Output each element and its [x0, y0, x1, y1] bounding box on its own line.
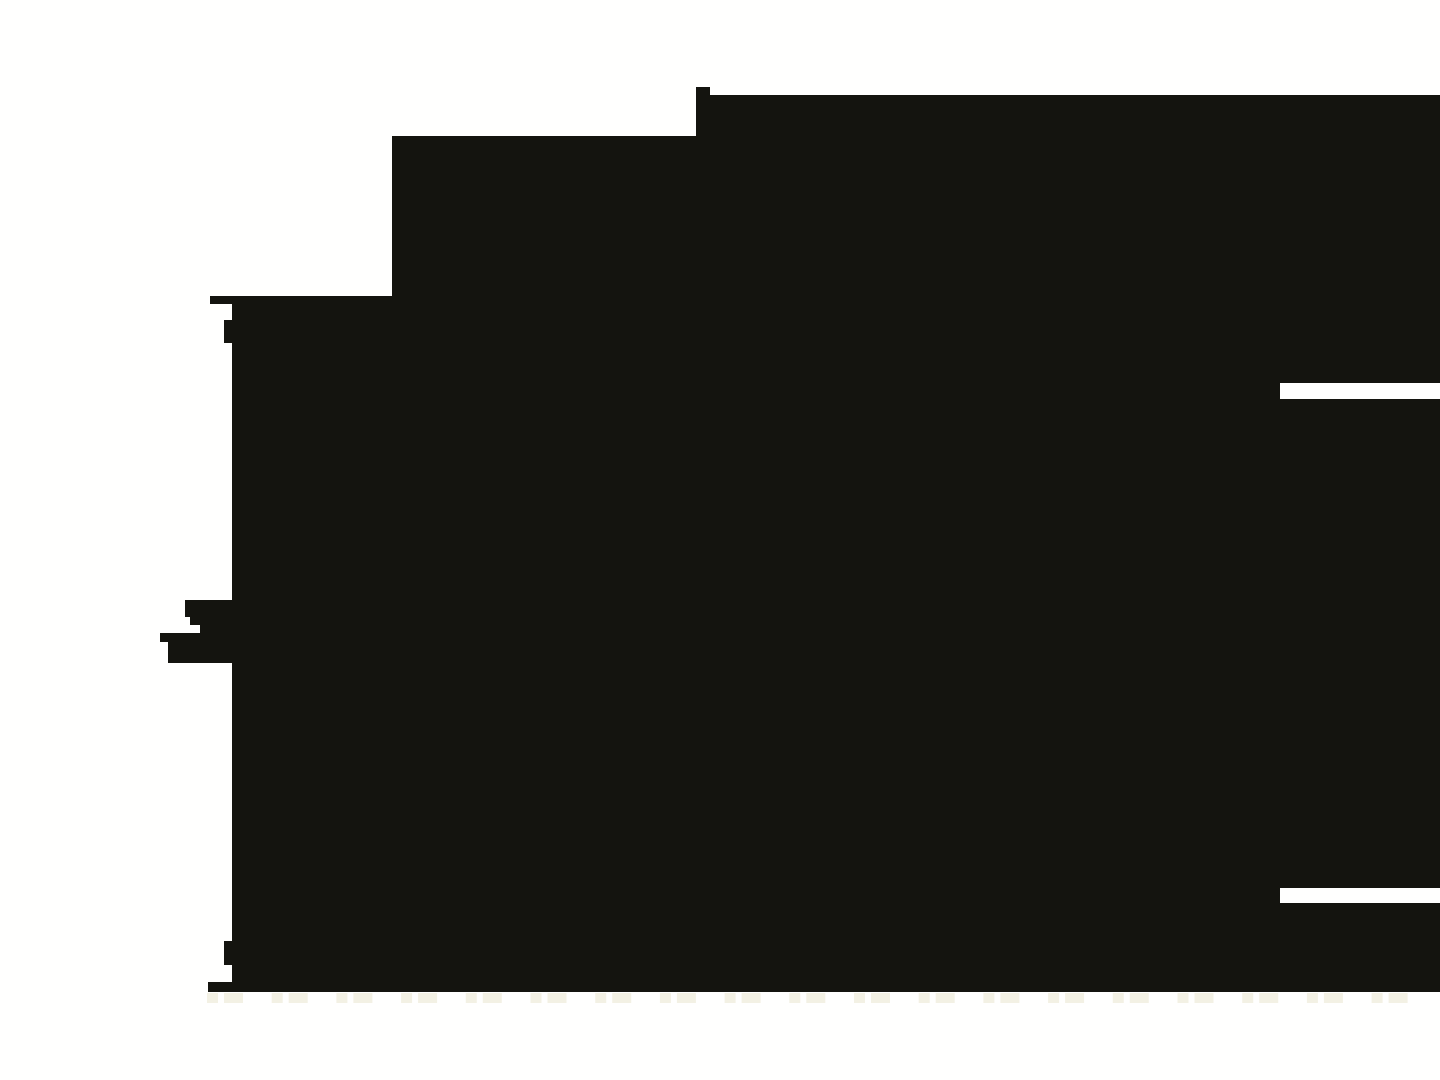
- faint-mark: [854, 993, 865, 1003]
- faint-mark: [1065, 993, 1084, 1003]
- silhouette-step-0: [224, 320, 232, 343]
- faint-mark: [677, 993, 696, 1003]
- faint-mark: [1324, 993, 1343, 1003]
- faint-mark: [1372, 993, 1383, 1003]
- faint-mark: [289, 993, 308, 1003]
- silhouette-step-6: [224, 941, 232, 965]
- faint-mark: [1178, 993, 1189, 1003]
- white-slit-1: [1280, 888, 1440, 903]
- faint-mark: [1259, 993, 1278, 1003]
- silhouette-step-1: [185, 600, 232, 617]
- faint-mark: [1113, 993, 1124, 1003]
- faint-mark: [336, 993, 347, 1003]
- faint-mark: [272, 993, 283, 1003]
- faint-mark: [1195, 993, 1214, 1003]
- faint-mark: [1000, 993, 1019, 1003]
- silhouette-image: [0, 0, 1440, 1080]
- faint-mark: [1307, 993, 1318, 1003]
- faint-mark: [742, 993, 761, 1003]
- faint-mark: [871, 993, 890, 1003]
- silhouette-step-5: [168, 642, 232, 663]
- faint-mark: [531, 993, 542, 1003]
- faint-mark: [207, 993, 218, 1003]
- faint-mark: [224, 993, 243, 1003]
- faint-mark: [983, 993, 994, 1003]
- faint-mark: [401, 993, 412, 1003]
- faint-mark: [483, 993, 502, 1003]
- silhouette-step-3: [200, 625, 232, 633]
- faint-mark: [548, 993, 567, 1003]
- faint-mark: [919, 993, 930, 1003]
- faint-mark: [1242, 993, 1253, 1003]
- binarized-photo-canvas: [0, 0, 1440, 1080]
- faint-mark: [725, 993, 736, 1003]
- faint-mark: [936, 993, 955, 1003]
- faint-mark: [353, 993, 372, 1003]
- faint-mark: [806, 993, 825, 1003]
- silhouette-step-2: [190, 617, 232, 625]
- dark-silhouette-blob: [208, 87, 1440, 992]
- faint-mark: [660, 993, 671, 1003]
- faint-mark: [595, 993, 606, 1003]
- faint-mark: [1130, 993, 1149, 1003]
- faint-mark: [1048, 993, 1059, 1003]
- white-slit-0: [1280, 383, 1440, 399]
- faint-mark: [789, 993, 800, 1003]
- faint-mark: [612, 993, 631, 1003]
- faint-mark: [418, 993, 437, 1003]
- silhouette-step-4: [160, 633, 232, 642]
- faint-mark: [466, 993, 477, 1003]
- faint-mark: [1389, 993, 1408, 1003]
